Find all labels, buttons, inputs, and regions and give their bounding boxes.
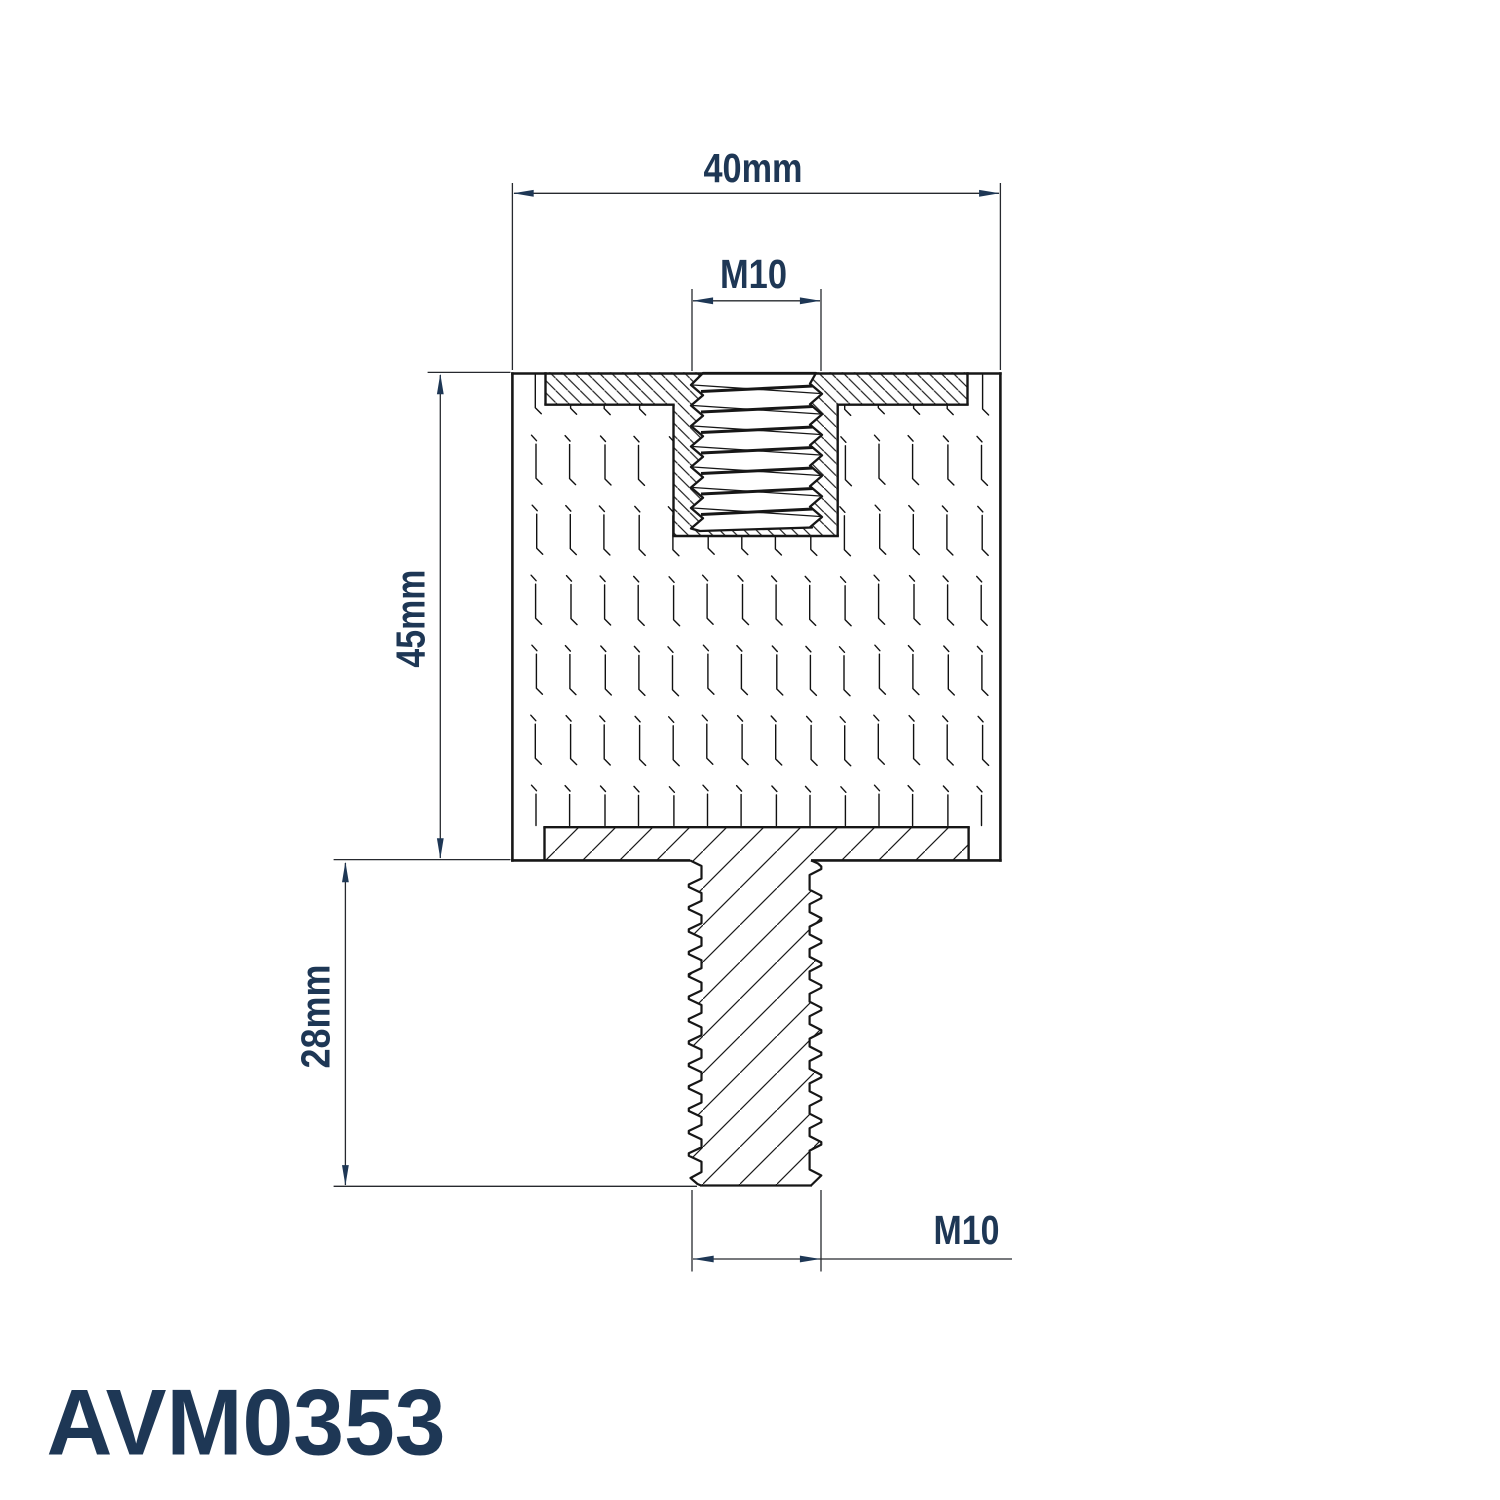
svg-text:45mm: 45mm [388,570,434,668]
svg-text:28mm: 28mm [293,965,339,1069]
svg-text:M10: M10 [934,1207,1000,1253]
svg-text:AVM0353: AVM0353 [47,1370,446,1475]
svg-text:M10: M10 [720,251,787,297]
svg-text:40mm: 40mm [704,145,803,191]
